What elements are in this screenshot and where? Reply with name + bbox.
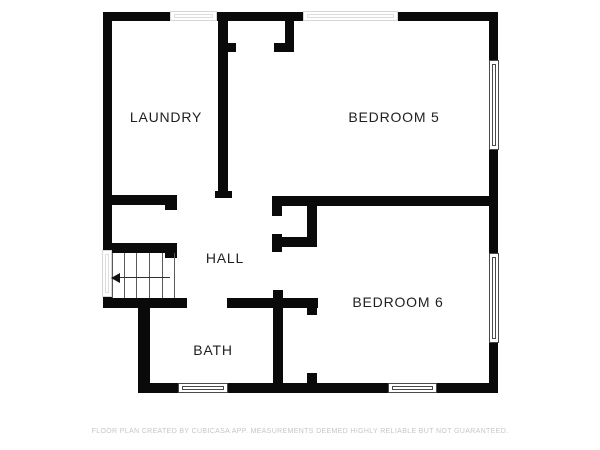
wall-segment-bottom-c bbox=[437, 383, 498, 393]
room-label-hall: HALL bbox=[206, 250, 244, 266]
wall-segment-stairs-top bbox=[103, 243, 165, 253]
window-icon-bed6-right bbox=[489, 253, 499, 343]
window-icon-bath-bottom bbox=[178, 383, 228, 393]
wall-segment-right-upper bbox=[489, 12, 498, 60]
wall-segment-bed6-doorwall-top bbox=[307, 298, 317, 315]
staircase bbox=[112, 253, 175, 298]
disclaimer-text: FLOOR PLAN CREATED BY CUBICASA APP. MEAS… bbox=[92, 428, 509, 435]
floor-plan-canvas: LAUNDRY BEDROOM 5 HALL BEDROOM 6 BATH FL… bbox=[0, 0, 600, 450]
window-pane bbox=[492, 64, 495, 146]
stair-tread-line bbox=[136, 253, 137, 298]
wall-segment-bath-top-right bbox=[227, 298, 318, 308]
wall-segment-stairs-bottom bbox=[103, 298, 187, 308]
window-icon-laundry-top bbox=[170, 11, 217, 21]
wall-segment-bath-left bbox=[138, 308, 150, 393]
wall-segment-hall-stub-b bbox=[272, 234, 282, 252]
wall-segment-left-upper bbox=[103, 12, 112, 250]
window-pane bbox=[174, 14, 213, 17]
wall-segment-closet1-stub-right bbox=[274, 43, 294, 52]
window-icon-bed5-top bbox=[303, 11, 398, 21]
stair-direction-arrow-icon bbox=[111, 273, 120, 283]
window-pane bbox=[492, 257, 495, 339]
window-pane bbox=[182, 386, 224, 389]
window-pane bbox=[392, 386, 433, 389]
stair-tread-line bbox=[149, 253, 150, 298]
stair-tread-line bbox=[124, 253, 125, 298]
wall-segment-closet2-right bbox=[307, 206, 317, 247]
wall-segment-bottom-b bbox=[228, 383, 388, 393]
wall-segment-bed5-bottom bbox=[272, 196, 498, 206]
window-icon-bed6-bottom bbox=[388, 383, 437, 393]
wall-segment-laundry-divider-cap bbox=[215, 191, 232, 198]
wall-segment-top-b bbox=[217, 12, 303, 21]
window-icon-bed5-right bbox=[489, 60, 499, 150]
wall-segment-laundry-bottom-cap bbox=[165, 195, 177, 210]
wall-segment-laundry-divider bbox=[218, 12, 228, 198]
room-label-bath: BATH bbox=[193, 342, 233, 358]
stair-arrow-line bbox=[113, 277, 170, 278]
wall-segment-top-a bbox=[103, 12, 170, 21]
window-pane bbox=[105, 254, 108, 293]
wall-segment-closet1-stub-left bbox=[226, 43, 236, 52]
wall-segment-top-c bbox=[398, 12, 498, 21]
window-pane bbox=[307, 14, 394, 17]
room-label-bedroom-5: BEDROOM 5 bbox=[348, 109, 439, 125]
wall-segment-hall-stub-a bbox=[272, 206, 282, 216]
room-label-laundry: LAUNDRY bbox=[130, 109, 202, 125]
room-label-bedroom-6: BEDROOM 6 bbox=[352, 294, 443, 310]
stair-tread-line bbox=[162, 253, 163, 298]
wall-segment-bed6-doorwall-bottom bbox=[307, 373, 317, 383]
